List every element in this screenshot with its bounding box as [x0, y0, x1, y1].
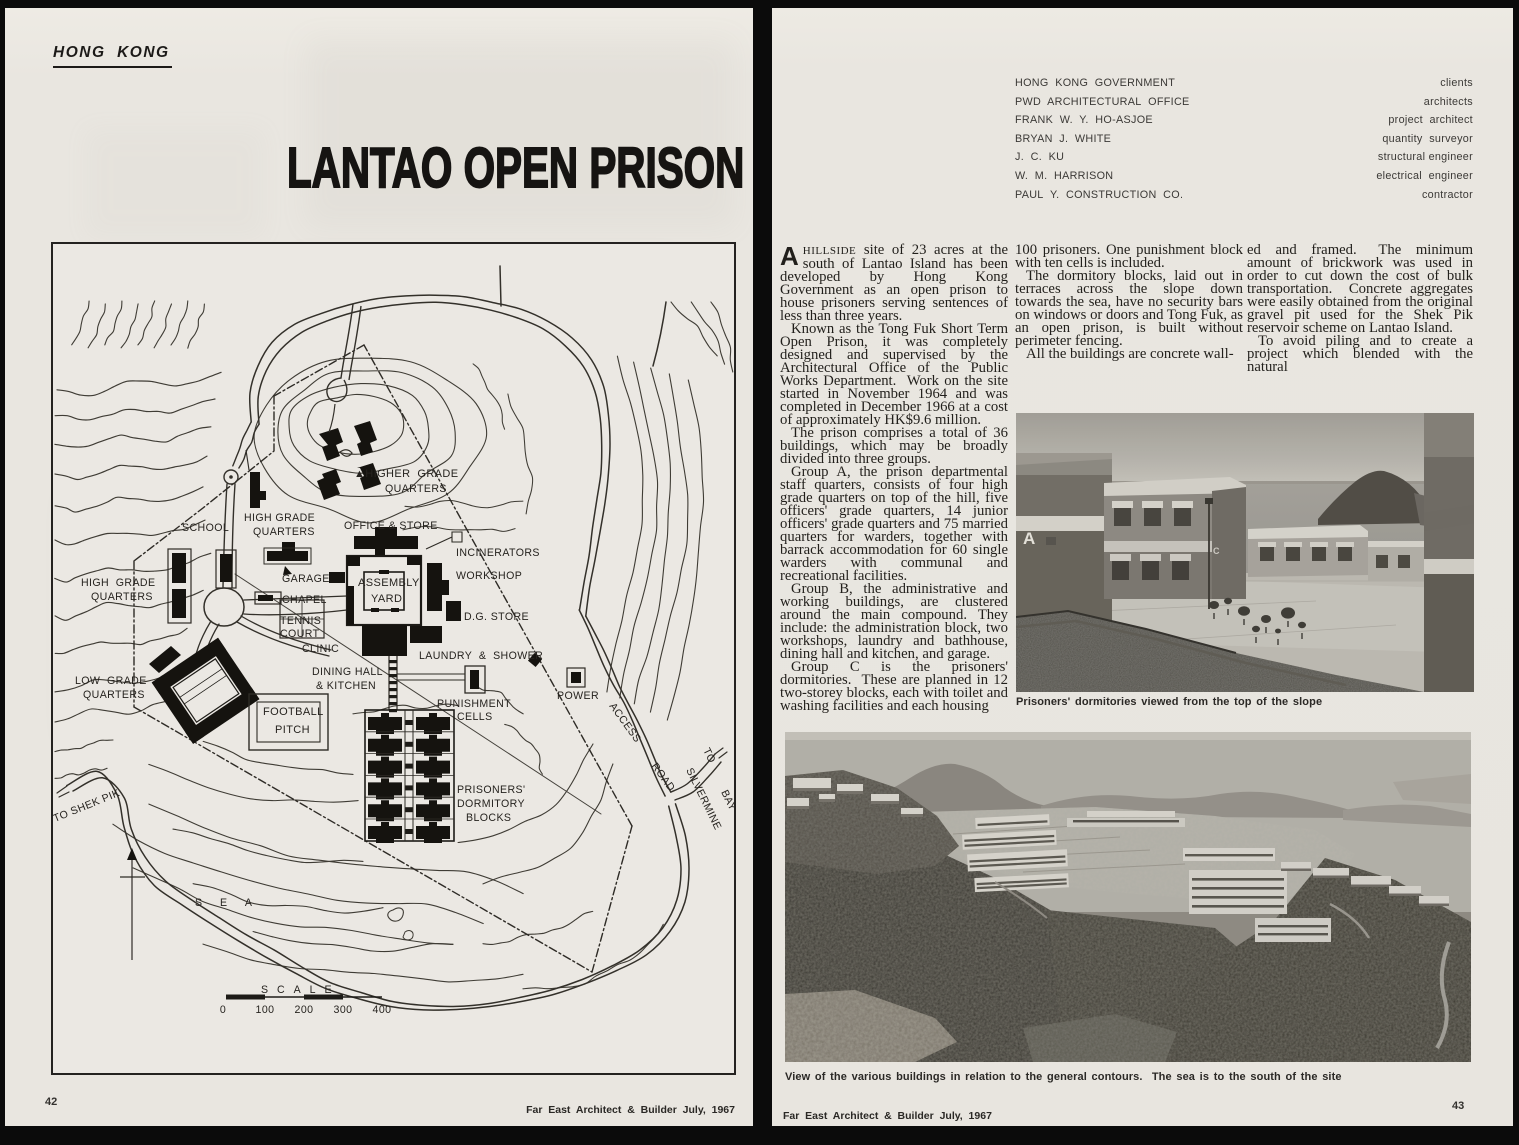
- svg-text:400: 400: [373, 1004, 392, 1016]
- svg-text:TO SHEK PIK: TO SHEK PIK: [53, 787, 122, 825]
- svg-text:TO: TO: [700, 746, 718, 765]
- svg-text:ROAD: ROAD: [649, 761, 678, 794]
- svg-text:POWER: POWER: [557, 690, 599, 702]
- svg-text:& KITCHEN: & KITCHEN: [316, 680, 376, 692]
- svg-text:YARD: YARD: [371, 593, 402, 605]
- svg-text:S E A: S E A: [195, 897, 256, 909]
- svg-text:D.G. STORE: D.G. STORE: [464, 611, 529, 623]
- svg-text:300: 300: [334, 1004, 353, 1016]
- svg-text:QUARTERS: QUARTERS: [91, 591, 153, 603]
- svg-text:ASSEMBLY: ASSEMBLY: [358, 577, 420, 589]
- svg-text:LAUNDRY & SHOWER: LAUNDRY & SHOWER: [419, 650, 543, 662]
- svg-text:200: 200: [295, 1004, 314, 1016]
- svg-text:TENNIS: TENNIS: [280, 615, 321, 627]
- svg-text:SILVERMINE: SILVERMINE: [683, 766, 723, 832]
- svg-text:PUNISHMENT: PUNISHMENT: [437, 698, 511, 710]
- svg-text:GARAGE: GARAGE: [282, 573, 330, 585]
- svg-text:QUARTERS: QUARTERS: [253, 526, 315, 538]
- svg-text:QUARTERS: QUARTERS: [385, 483, 447, 495]
- svg-text:HIGH GRADE: HIGH GRADE: [244, 512, 315, 524]
- svg-text:LOW GRADE: LOW GRADE: [75, 675, 147, 687]
- svg-text:DINING HALL: DINING HALL: [312, 666, 383, 678]
- svg-text:QUARTERS: QUARTERS: [83, 689, 145, 701]
- svg-text:DORMITORY: DORMITORY: [457, 798, 525, 810]
- svg-text:WORKSHOP: WORKSHOP: [456, 570, 522, 582]
- svg-text:SCHOOL: SCHOOL: [182, 522, 229, 534]
- svg-text:CLINIC: CLINIC: [302, 643, 339, 655]
- svg-text:FOOTBALL: FOOTBALL: [263, 706, 324, 718]
- svg-text:CELLS: CELLS: [457, 711, 493, 723]
- svg-text:INCINERATORS: INCINERATORS: [456, 547, 540, 559]
- svg-text:BLOCKS: BLOCKS: [466, 812, 511, 824]
- svg-text:0: 0: [220, 1004, 226, 1016]
- svg-text:COURT: COURT: [280, 628, 320, 640]
- svg-text:100: 100: [256, 1004, 275, 1016]
- svg-text:PRISONERS': PRISONERS': [457, 784, 525, 796]
- svg-text:HIGH GRADE: HIGH GRADE: [81, 577, 155, 589]
- svg-text:CHAPEL: CHAPEL: [282, 594, 327, 606]
- svg-text:PITCH: PITCH: [275, 724, 310, 736]
- svg-text:OFFICE & STORE: OFFICE & STORE: [344, 520, 438, 532]
- svg-text:S C A L E: S C A L E: [261, 984, 335, 996]
- svg-text:BAY: BAY: [718, 788, 734, 813]
- svg-text:▲HIGHER GRADE: ▲HIGHER GRADE: [354, 468, 459, 480]
